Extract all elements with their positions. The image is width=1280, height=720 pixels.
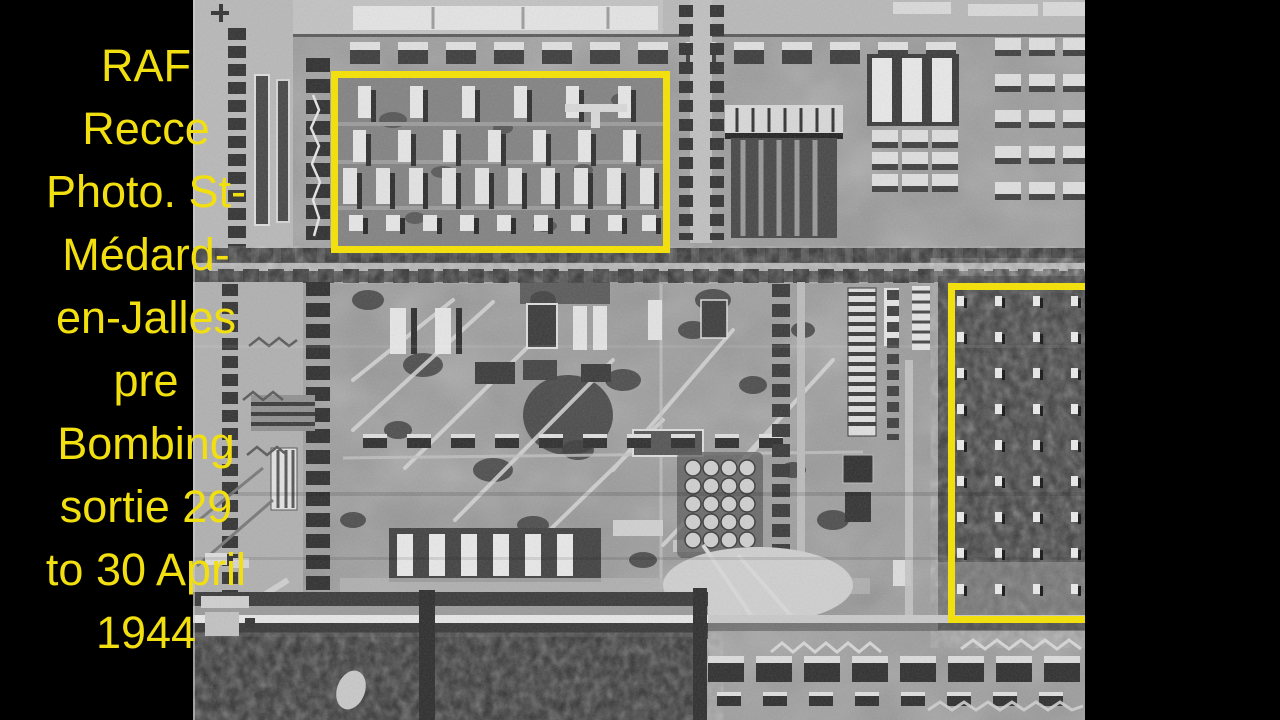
caption-line: Médard- (2, 223, 290, 286)
caption-line: Bombing (2, 412, 290, 475)
caption-line: en-Jalles (2, 286, 290, 349)
annotation-box-barracks-area (331, 71, 670, 253)
caption-line: sortie 29 (2, 475, 290, 538)
caption-line: to 30 April (2, 538, 290, 601)
caption-line: 1944 (2, 601, 290, 664)
caption-line: RAF (2, 34, 290, 97)
annotation-box-wooded-storage-area (948, 283, 1085, 623)
caption-line: pre (2, 349, 290, 412)
caption-line: Recce (2, 97, 290, 160)
video-frame: RAF Recce Photo. St- Médard- en-Jalles p… (0, 0, 1280, 720)
photo-caption: RAF Recce Photo. St- Médard- en-Jalles p… (2, 34, 290, 664)
caption-line: Photo. St- (2, 160, 290, 223)
recon-photo (193, 0, 1085, 720)
